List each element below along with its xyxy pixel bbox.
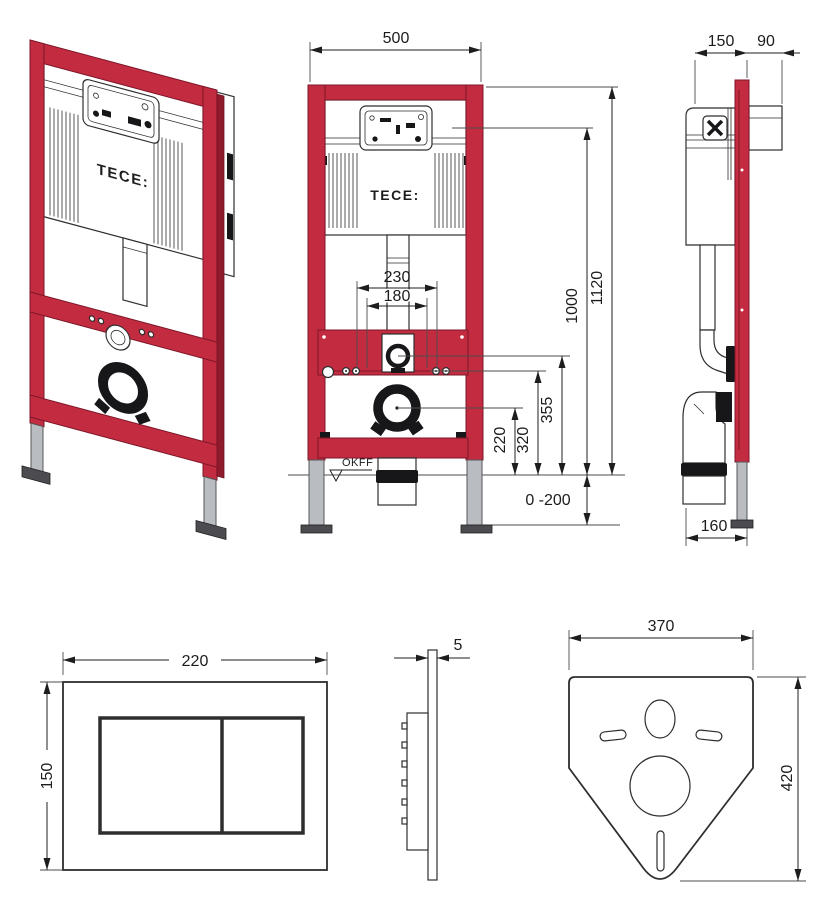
technical-drawing-sheet: TECE:	[0, 0, 824, 904]
front-view: TECE:	[280, 20, 630, 540]
arrow-90	[782, 50, 794, 57]
dim-230: 230	[384, 269, 411, 286]
dim-1120: 1120	[589, 271, 606, 306]
dim-160: 160	[701, 518, 728, 535]
iso-left-rail	[30, 40, 44, 427]
mat-oval-hole	[645, 700, 675, 738]
floor-label: OKFF	[342, 457, 373, 469]
iso-left-leg	[31, 423, 43, 473]
front-lower-bar	[318, 438, 468, 458]
mat-right-slot	[696, 730, 723, 742]
floor-level-symbol	[330, 470, 342, 481]
side-leg	[737, 462, 747, 522]
arrow-5-right	[437, 655, 449, 662]
dim-mat-420: 420	[779, 765, 796, 792]
dim-320: 320	[515, 427, 532, 454]
dim-mat-370: 370	[648, 618, 675, 635]
flush-plate-side-view: 5	[380, 630, 485, 895]
sound-insulation-mat-view: 370 420	[540, 598, 824, 904]
dim-floor-range: 0 -200	[525, 492, 570, 509]
plate-side-profile	[428, 650, 437, 880]
dim-plate-150: 150	[39, 763, 56, 790]
iso-mid-crossbar	[30, 292, 217, 362]
dim-180: 180	[384, 288, 411, 305]
arrow-5-left	[416, 655, 428, 662]
dim-1000: 1000	[564, 288, 581, 324]
side-flush-elbow	[700, 330, 728, 374]
side-wall-bracket	[749, 106, 782, 150]
dim-500: 500	[383, 30, 410, 47]
iso-frame: TECE:	[22, 38, 234, 542]
front-right-rail	[466, 85, 483, 460]
isometric-view: TECE:	[6, 20, 276, 565]
mat-bottom-slot	[657, 831, 664, 871]
dim-plate-5: 5	[454, 637, 463, 654]
side-rail	[735, 80, 749, 462]
tece-logo-front: TECE:	[370, 187, 420, 203]
plate-mounting-box	[407, 713, 428, 850]
flush-plate-front-view: 220 150	[20, 630, 355, 895]
dim-150: 150	[708, 33, 735, 50]
side-outlet-pipe	[683, 476, 725, 504]
dim-90: 90	[757, 33, 775, 50]
front-top-bar	[308, 85, 483, 100]
dim-220: 220	[492, 427, 509, 454]
mat-drain-hole	[630, 756, 690, 816]
dim-355: 355	[539, 397, 556, 424]
side-view: 150 90 160	[650, 20, 824, 565]
iso-right-leg	[204, 477, 216, 527]
front-right-foot	[461, 525, 492, 533]
flush-buttons	[100, 718, 303, 833]
front-left-foot	[301, 525, 332, 533]
side-flush-pipe	[700, 245, 715, 330]
mat-left-slot	[600, 730, 627, 742]
front-left-leg	[309, 460, 324, 525]
front-left-rail	[308, 85, 325, 460]
iso-drain-socket	[103, 363, 143, 414]
iso-right-rail	[203, 86, 217, 480]
front-right-leg	[467, 460, 482, 525]
dim-plate-220: 220	[182, 653, 209, 670]
side-foot	[731, 520, 753, 528]
